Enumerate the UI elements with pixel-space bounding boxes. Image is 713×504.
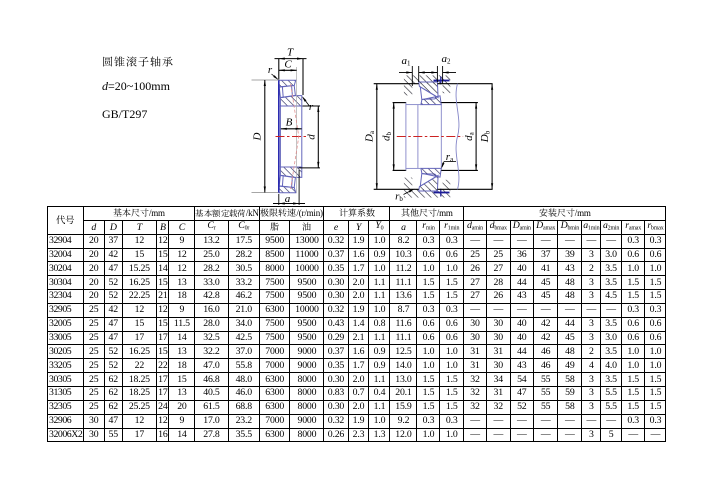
svg-text:r: r [309, 101, 314, 113]
svg-text:C: C [284, 59, 292, 71]
svg-text:Db: Db [479, 130, 492, 143]
svg-text:rb: rb [395, 191, 403, 204]
svg-text:a2: a2 [442, 53, 452, 66]
svg-text:a1: a1 [402, 55, 412, 68]
svg-text:B: B [286, 117, 293, 129]
svg-text:da: da [463, 131, 476, 141]
svg-text:db: db [381, 132, 394, 142]
svg-text:d: d [306, 134, 318, 140]
svg-text:D: D [252, 132, 264, 141]
svg-text:T: T [287, 47, 294, 59]
svg-text:Da: Da [364, 130, 377, 143]
